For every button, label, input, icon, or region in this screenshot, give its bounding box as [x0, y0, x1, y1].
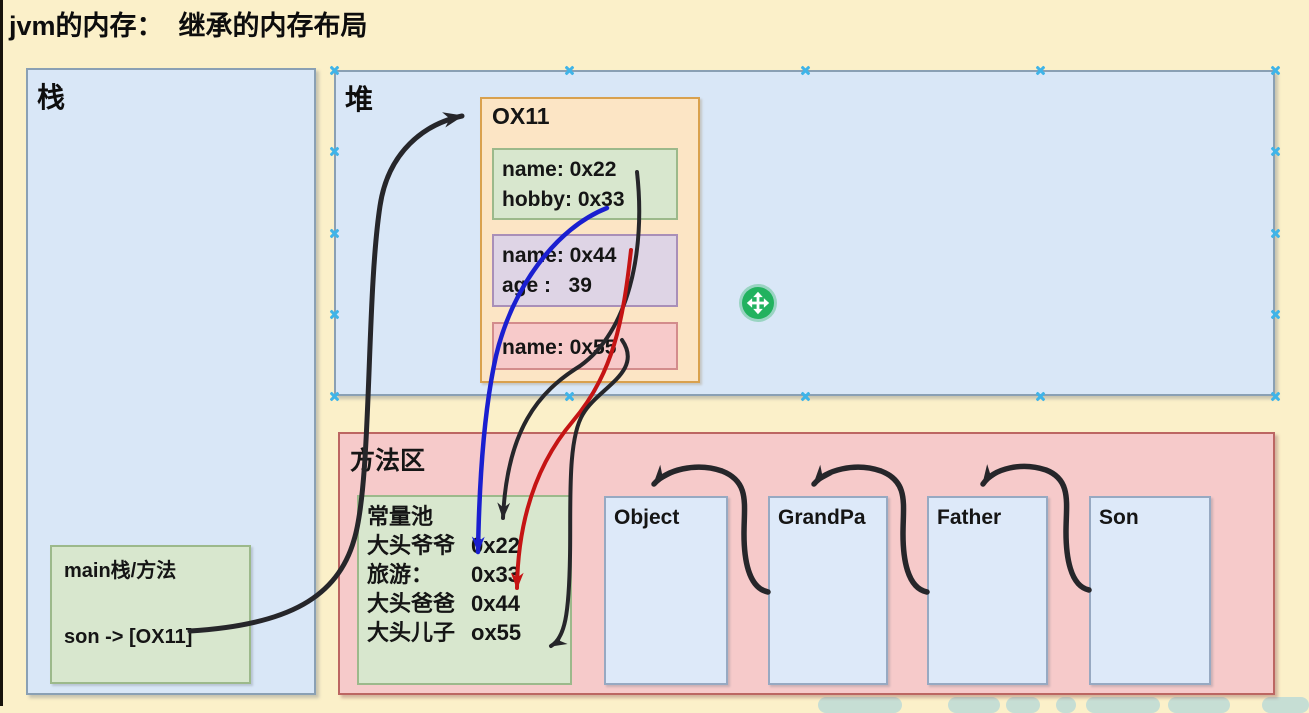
main-frame-box[interactable]: main栈/方法 son -> [OX11]: [50, 545, 251, 684]
constant-value: 0x44: [471, 589, 520, 618]
field-age-39: age : 39: [502, 271, 676, 301]
stack-label: 栈: [28, 70, 314, 116]
constant-pool-entry: 大头爷爷 0x22: [367, 531, 570, 560]
heap-region-box[interactable]: 堆 OX11 name: 0x22 hobby: 0x33 name: 0x44…: [334, 70, 1275, 396]
constant-name: 大头爸爸: [367, 589, 471, 618]
class-name: Object: [606, 498, 726, 530]
screen-left-edge: [0, 0, 3, 706]
constant-value: 0x33: [471, 560, 520, 589]
main-frame-entry: son -> [OX11]: [64, 625, 239, 649]
class-box-son[interactable]: Son: [1089, 496, 1211, 685]
instance-address-label: OX11: [482, 99, 698, 130]
constant-pool-title: 常量池: [367, 502, 570, 531]
watermark-blob: [1056, 697, 1076, 713]
move-cursor-icon[interactable]: [742, 287, 774, 319]
watermark-blob: [818, 697, 902, 713]
father-fields-box[interactable]: name: 0x44 age : 39: [492, 234, 678, 307]
watermark-blob: [1086, 697, 1160, 713]
class-box-father[interactable]: Father: [927, 496, 1048, 685]
watermark-blob: [948, 697, 1000, 713]
constant-name: 大头爷爷: [367, 531, 471, 560]
class-name: Father: [929, 498, 1046, 530]
class-box-grandpa[interactable]: GrandPa: [768, 496, 888, 685]
class-box-object[interactable]: Object: [604, 496, 728, 685]
method-area-label: 方法区: [340, 434, 1273, 477]
grandpa-fields-box[interactable]: name: 0x55: [492, 322, 678, 370]
constant-name: 旅游：: [367, 560, 471, 589]
class-name: Son: [1091, 498, 1209, 530]
heap-label: 堆: [336, 72, 1273, 118]
drawing-canvas: jvm的内存： 继承的内存布局 栈 main栈/方法 son -> [OX11]…: [0, 0, 1309, 706]
constant-value: 0x22: [471, 531, 520, 560]
constant-pool-entry: 旅游： 0x33: [367, 560, 570, 589]
son-fields-box[interactable]: name: 0x22 hobby: 0x33: [492, 148, 678, 220]
field-name-0x55: name: 0x55: [502, 333, 676, 363]
page-title: jvm的内存： 继承的内存布局: [9, 4, 368, 43]
field-hobby-0x33: hobby: 0x33: [502, 185, 676, 215]
constant-pool-entry: 大头爸爸 0x44: [367, 589, 570, 618]
main-frame-title: main栈/方法: [64, 559, 239, 583]
field-name-0x22: name: 0x22: [502, 155, 676, 185]
constant-pool-box[interactable]: 常量池 大头爷爷 0x22 旅游： 0x33 大头爸爸 0x44 大头儿子 ox…: [357, 495, 572, 685]
constant-name: 大头儿子: [367, 618, 471, 647]
watermark-blob: [1168, 697, 1230, 713]
watermark-blob: [1006, 697, 1040, 713]
watermark-blob: [1262, 697, 1309, 713]
class-name: GrandPa: [770, 498, 886, 530]
method-area-box[interactable]: 方法区 常量池 大头爷爷 0x22 旅游： 0x33 大头爸爸 0x44 大头儿…: [338, 432, 1275, 695]
constant-value: ox55: [471, 618, 521, 647]
field-name-0x44: name: 0x44: [502, 241, 676, 271]
object-instance-box[interactable]: OX11 name: 0x22 hobby: 0x33 name: 0x44 a…: [480, 97, 700, 383]
constant-pool-entry: 大头儿子 ox55: [367, 618, 570, 647]
stack-region-box[interactable]: 栈 main栈/方法 son -> [OX11]: [26, 68, 316, 695]
